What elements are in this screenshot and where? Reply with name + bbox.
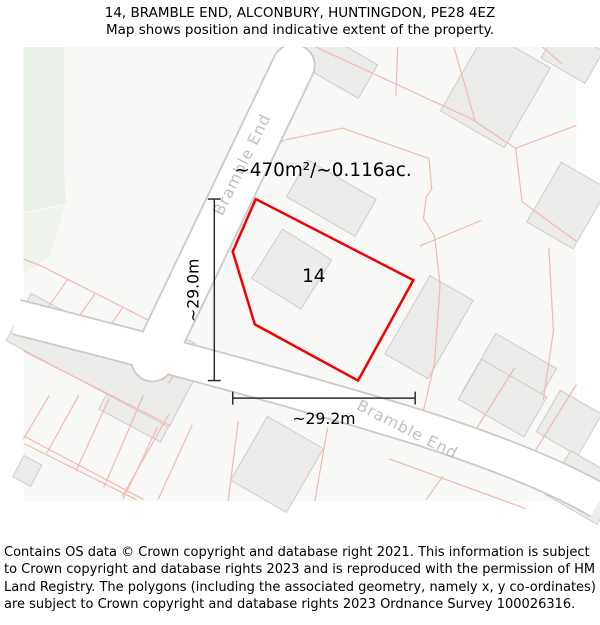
- height-dimension-label: ~29.0m: [184, 259, 203, 322]
- green-area: [24, 47, 66, 212]
- area-label: ~470m²/~0.116ac.: [234, 160, 411, 181]
- map-svg: Bramble End Bramble End ~470m²/~0.116ac.…: [0, 47, 600, 540]
- page-title: 14, BRAMBLE END, ALCONBURY, HUNTINGDON, …: [0, 5, 600, 22]
- report-header: 14, BRAMBLE END, ALCONBURY, HUNTINGDON, …: [0, 0, 600, 47]
- plot-number-label: 14: [302, 266, 325, 287]
- property-map-report: 14, BRAMBLE END, ALCONBURY, HUNTINGDON, …: [0, 0, 600, 625]
- map-container: Bramble End Bramble End ~470m²/~0.116ac.…: [0, 47, 600, 540]
- copyright-note: Contains OS data © Crown copyright and d…: [0, 540, 600, 614]
- width-dimension-label: ~29.2m: [292, 409, 355, 428]
- page-subtitle: Map shows position and indicative extent…: [0, 22, 600, 39]
